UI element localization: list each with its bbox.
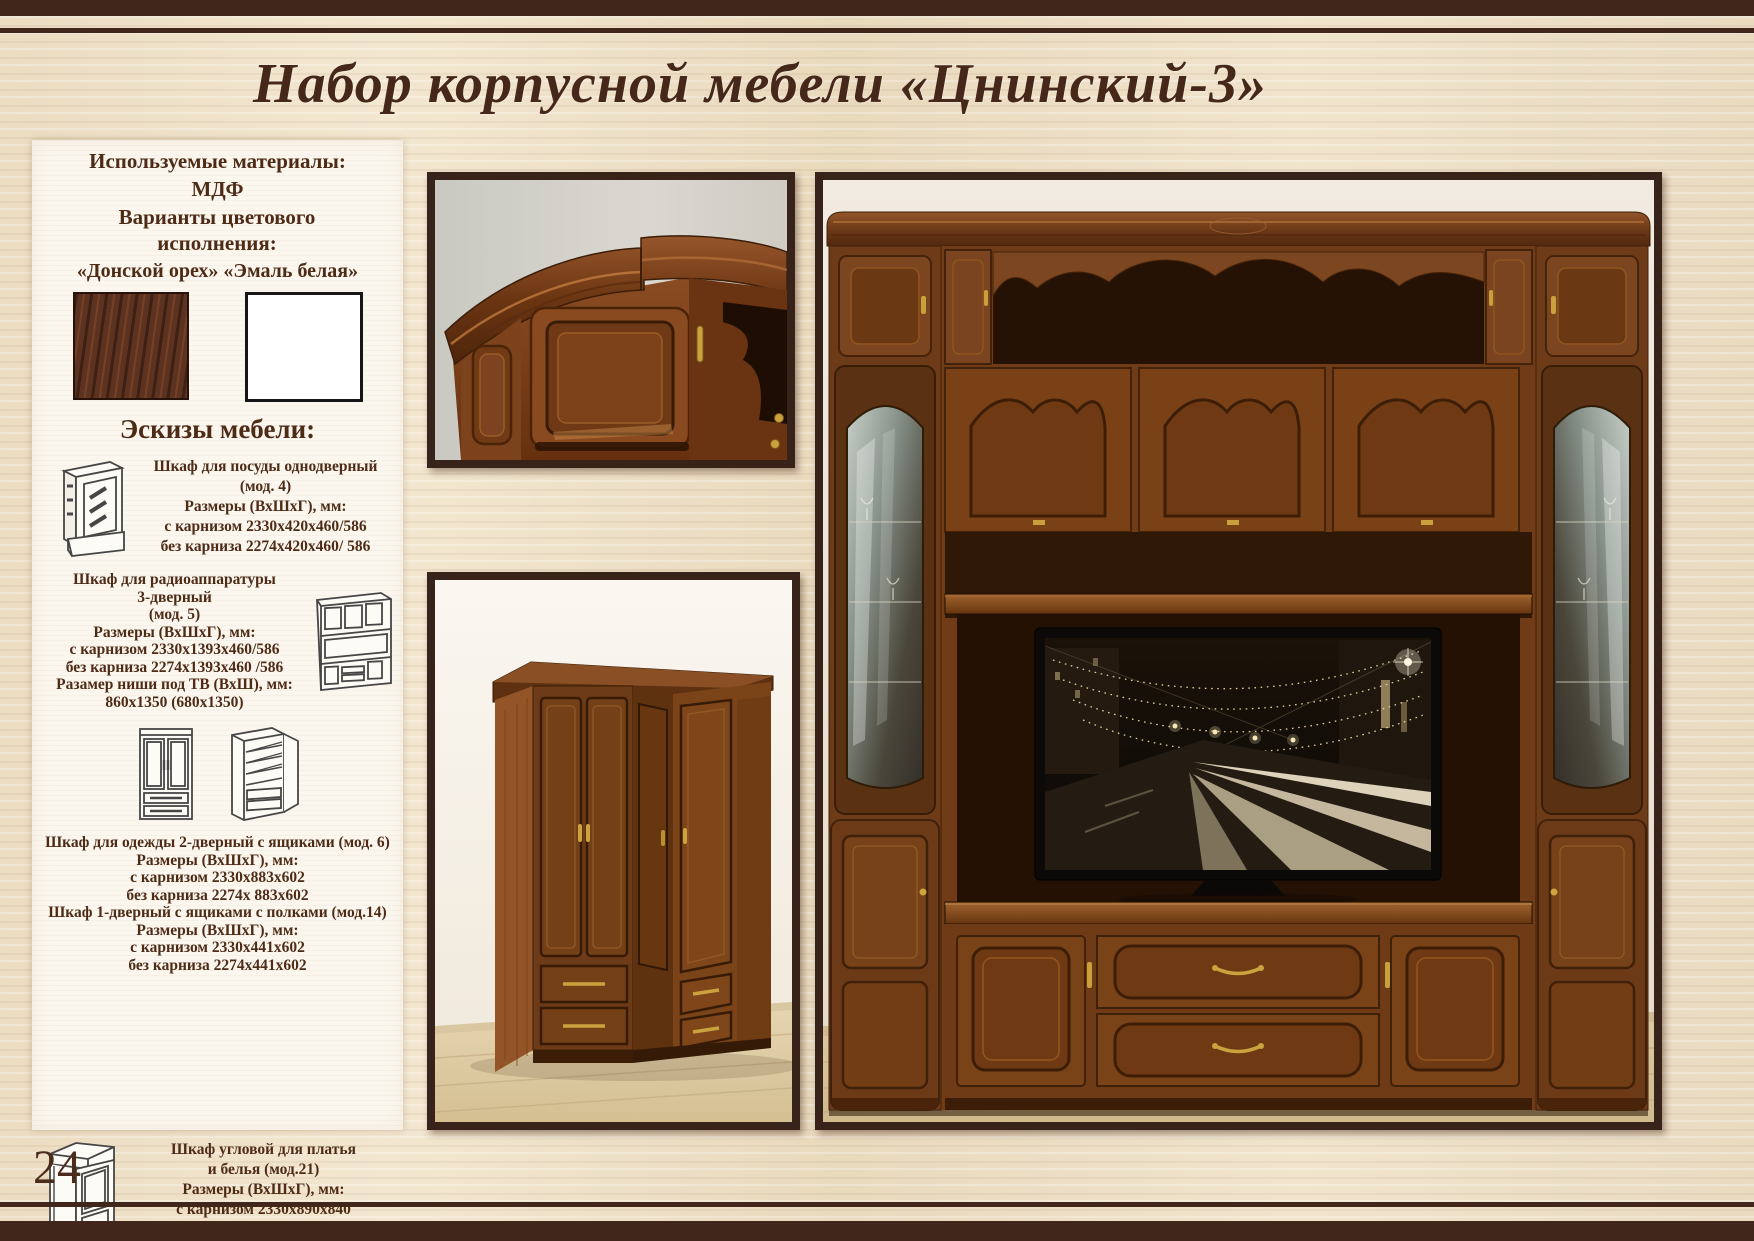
color-swatches bbox=[32, 292, 403, 402]
spec-line: с карнизом 2330х420х460/586 bbox=[128, 517, 403, 537]
spec-block-mod4: Шкаф для посуды однодверный (мод. 4) Раз… bbox=[32, 452, 403, 562]
cornice-detail-illustration bbox=[435, 180, 787, 460]
corner-wardrobe-illustration bbox=[435, 580, 792, 1122]
spec-line: Шкаф для радиоаппаратуры bbox=[40, 571, 309, 589]
spec-line: 860х1350 (680х1350) bbox=[40, 694, 309, 712]
spec-line: Шкаф угловой для платья bbox=[124, 1140, 403, 1160]
info-panel: Используемые материалы: МДФ Варианты цве… bbox=[32, 140, 403, 1130]
spec-line: Шкаф 1-дверный с ящиками с полками (мод.… bbox=[32, 904, 403, 922]
spec-block-mod6-14: Шкаф для одежды 2-дверный с ящиками (мод… bbox=[32, 834, 403, 974]
spec-text-mod4: Шкаф для посуды однодверный (мод. 4) Раз… bbox=[128, 457, 403, 557]
sketches-heading: Эскизы мебели: bbox=[32, 414, 403, 445]
page-number: 24 bbox=[33, 1140, 81, 1195]
spec-line: без карниза 2274х420х460/ 586 bbox=[128, 537, 403, 557]
photo-wall-unit bbox=[815, 172, 1662, 1130]
page-title: Набор корпусной мебели «Цнинский-3» bbox=[0, 52, 1520, 116]
sketch-mod6-wardrobe bbox=[134, 724, 198, 826]
sketch-mod5 bbox=[309, 584, 397, 698]
spec-line: с карнизом 2330х883х602 bbox=[32, 869, 403, 887]
swatch-emal-belaya bbox=[245, 292, 363, 402]
spec-line: Размеры (ВхШхГ), мм: bbox=[128, 497, 403, 517]
swatch-donskoy-oreh bbox=[73, 292, 189, 400]
spec-line: с карнизом 2330х1393х460/586 bbox=[40, 641, 309, 659]
spec-line: и белья (мод.21) bbox=[124, 1160, 403, 1180]
spec-text-mod5: Шкаф для радиоаппаратуры 3-дверный (мод.… bbox=[40, 571, 309, 711]
wall-unit-illustration bbox=[823, 180, 1654, 1122]
spec-line: с карнизом 2330х441х602 bbox=[32, 939, 403, 957]
spec-line: Разамер ниши под ТВ (ВхШ), мм: bbox=[40, 676, 309, 694]
catalog-page: Набор корпусной мебели «Цнинский-3» Испо… bbox=[0, 0, 1754, 1241]
spec-line: Шкаф для посуды однодверный bbox=[128, 457, 403, 477]
materials-heading: Используемые материалы: bbox=[32, 148, 403, 174]
spec-line: Размеры (ВхШхГ), мм: bbox=[32, 852, 403, 870]
spec-block-mod5: Шкаф для радиоаппаратуры 3-дверный (мод.… bbox=[32, 570, 403, 712]
spec-line: 3-дверный bbox=[40, 589, 309, 607]
material-value: МДФ bbox=[32, 176, 403, 202]
spec-line: (мод. 4) bbox=[128, 477, 403, 497]
spec-line: без карниза 2274х441х602 bbox=[32, 957, 403, 975]
sketch-mod6-shelf-unit bbox=[224, 722, 302, 826]
spec-text-mod6-14: Шкаф для одежды 2-дверный с ящиками (мод… bbox=[32, 834, 403, 974]
spec-line: без карниза 2274х1393х460 /586 bbox=[40, 659, 309, 677]
sketches-mod6 bbox=[32, 722, 403, 826]
spec-line: Размеры (ВхШхГ), мм: bbox=[124, 1180, 403, 1200]
spec-line: без карниза 2274х 883х602 bbox=[32, 887, 403, 905]
spec-line: Размеры (ВхШхГ), мм: bbox=[32, 922, 403, 940]
photo-cornice-detail bbox=[427, 172, 795, 468]
spec-line: Шкаф для одежды 2-дверный с ящиками (мод… bbox=[32, 834, 403, 852]
spec-line: Размеры (ВхШхГ), мм: bbox=[40, 624, 309, 642]
photo-corner-wardrobe bbox=[427, 572, 800, 1130]
color-names: «Донской орех» «Эмаль белая» bbox=[32, 260, 403, 283]
bottom-band bbox=[0, 1221, 1754, 1241]
top-rule bbox=[0, 28, 1754, 33]
colors-heading: Варианты цветового исполнения: bbox=[87, 204, 347, 256]
bottom-rule bbox=[0, 1202, 1754, 1207]
top-band bbox=[0, 0, 1754, 16]
spec-line: (мод. 5) bbox=[40, 606, 309, 624]
sketch-mod4 bbox=[54, 454, 128, 560]
